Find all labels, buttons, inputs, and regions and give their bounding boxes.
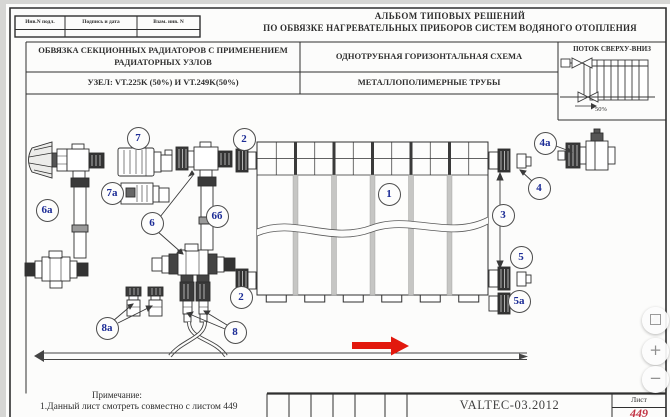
callout-3: 3 xyxy=(492,204,515,227)
callout-6b: 6б xyxy=(206,205,229,228)
callout-5: 5 xyxy=(510,246,533,269)
album-title-line1: АЛЬБОМ ТИПОВЫХ РЕШЕНИЙ xyxy=(232,11,668,21)
document-code: VALTEC-03.2012 xyxy=(409,398,610,413)
radiator xyxy=(257,142,488,302)
note-title: Примечание: xyxy=(92,390,142,400)
sheet-number: 449 xyxy=(613,406,665,417)
callout-2-top: 2 xyxy=(233,128,256,151)
scheme-block-title-line2: РАДИАТОРНЫХ УЗЛОВ xyxy=(30,57,296,67)
callout-7a: 7a xyxy=(101,182,124,205)
callout-4: 4 xyxy=(528,177,551,200)
callout-8a: 8a xyxy=(96,317,119,340)
node-row-title: УЗЕЛ: VT.225K (50%) И VT.249K(50%) xyxy=(30,77,296,87)
note-line-1: 1.Данный лист смотреть совместно с листо… xyxy=(40,402,238,412)
callout-4a: 4a xyxy=(534,132,557,155)
scheme-block-title-line1: ОБВЯЗКА СЕКЦИОННЫХ РАДИАТОРОВ С ПРИМЕНЕН… xyxy=(30,45,296,55)
drawing-viewer: АЛЬБОМ ТИПОВЫХ РЕШЕНИЙ ПО ОБВЯЗКЕ НАГРЕВ… xyxy=(0,0,670,417)
callout-7: 7 xyxy=(127,127,150,150)
scheme-type-title: ОДНОТРУБНАЯ ГОРИЗОНТАЛЬНАЯ СХЕМА xyxy=(304,51,554,61)
callout-1: 1 xyxy=(378,183,401,206)
album-title-line2: ПО ОБВЯЗКЕ НАГРЕВАТЕЛЬНЫХ ПРИБОРОВ СИСТЕ… xyxy=(232,23,668,33)
callout-6a: 6a xyxy=(36,199,59,222)
fitting-2-top xyxy=(236,149,256,172)
fullscreen-button[interactable] xyxy=(642,307,669,334)
pipe-type-title: МЕТАЛЛОПОЛИМЕРНЫЕ ТРУБЫ xyxy=(304,77,554,87)
sheet-label: Лист xyxy=(613,395,665,404)
flow-box-title: ПОТОК СВЕРХУ-ВНИЗ xyxy=(560,45,664,53)
callout-6: 6 xyxy=(141,212,164,235)
stamp-col-vzam: Взам. инв. N xyxy=(138,19,199,25)
stamp-col-inv: Инв.N подл. xyxy=(16,19,64,25)
callout-2-bottom: 2 xyxy=(230,286,253,309)
callout-5a: 5a xyxy=(508,290,531,313)
zoom-in-button[interactable]: + xyxy=(642,338,669,365)
stamp-col-signature: Подпись и дата xyxy=(66,19,136,25)
callout-8: 8 xyxy=(224,321,247,344)
fullscreen-icon xyxy=(650,314,661,325)
flow-box-percent: 50% xyxy=(586,106,616,113)
zoom-out-button[interactable]: − xyxy=(642,366,669,393)
fitting-5a xyxy=(489,293,510,314)
